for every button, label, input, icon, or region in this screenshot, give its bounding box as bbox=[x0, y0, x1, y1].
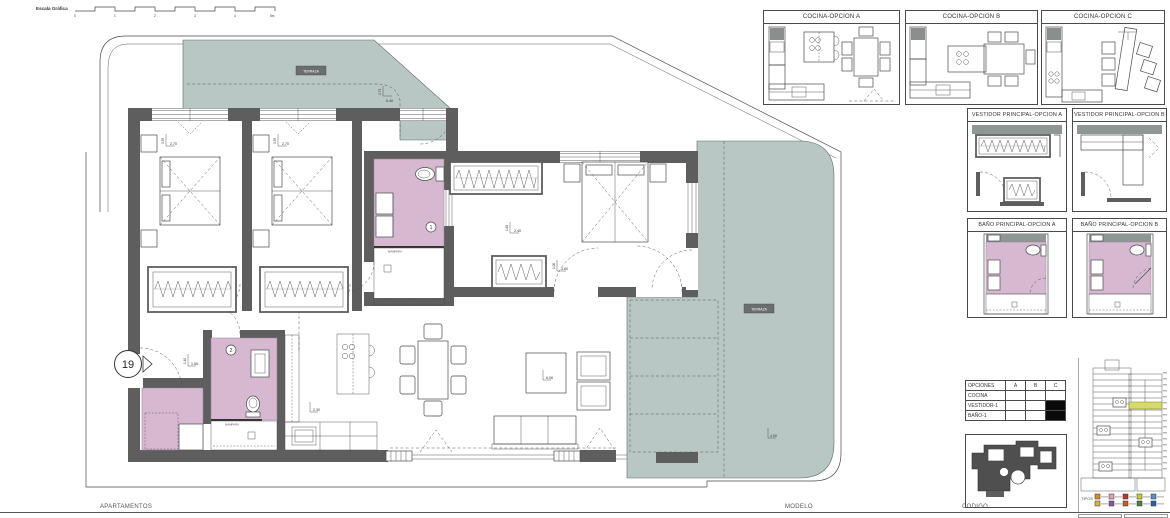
dim-kitchen: 2.30 bbox=[313, 408, 320, 412]
dim-bed1-width: 2.70 bbox=[170, 142, 177, 146]
panel-title: COCINA-OPCION A bbox=[764, 11, 899, 24]
legend-swatch bbox=[1151, 501, 1156, 506]
master-bedroom: 1.83 2.40 1.00 3.60 bbox=[450, 162, 666, 288]
terrace-top-label: TERRAZA bbox=[303, 70, 320, 74]
option-cell bbox=[1026, 411, 1046, 421]
option-cell bbox=[1006, 411, 1026, 421]
kitchen: 2.30 bbox=[285, 334, 377, 450]
bath1-number-marker: 1 bbox=[426, 222, 436, 232]
vestidor-b-drawing bbox=[1073, 122, 1166, 212]
dining-table bbox=[418, 341, 448, 399]
dim-bed2-width: 2.70 bbox=[282, 142, 289, 146]
legend-swatch bbox=[1137, 501, 1142, 506]
row-label: BAÑO-1 bbox=[966, 411, 1006, 421]
panel-bano-a: BAÑO PRINCIPAL-OPCION A bbox=[967, 218, 1067, 318]
title-block-box bbox=[1124, 514, 1168, 518]
dim-entry-depth: 1.40 bbox=[183, 358, 187, 364]
unit-number: 19 bbox=[122, 359, 134, 371]
wardrobe-small bbox=[1004, 178, 1040, 202]
stool bbox=[369, 345, 375, 378]
legend-swatch bbox=[1123, 494, 1128, 499]
footer-apartments-label: APARTAMENTOS bbox=[100, 504, 152, 510]
svg-text:2: 2 bbox=[230, 348, 233, 354]
terrace-right-floor bbox=[627, 141, 834, 478]
row-label: VESTIDOR-1 bbox=[966, 401, 1006, 411]
kitchen-counter bbox=[285, 335, 377, 450]
floorplan-sheet: Escala Gráfica 0 1 2 3 4 5m TERRAZA 2.73… bbox=[0, 0, 1170, 518]
scale-tick: 5m bbox=[270, 14, 275, 18]
dim-master-width: 2.40 bbox=[514, 229, 521, 233]
shower-area bbox=[374, 248, 444, 305]
dim-living-width: 3.60 bbox=[561, 267, 568, 271]
key-plan bbox=[965, 434, 1067, 508]
island bbox=[804, 32, 839, 62]
window bbox=[152, 109, 228, 121]
header-cell: B bbox=[1026, 381, 1046, 391]
option-cell bbox=[1026, 401, 1046, 411]
toilet bbox=[416, 167, 445, 181]
legend-swatch bbox=[1123, 501, 1128, 506]
legend-swatch bbox=[1109, 494, 1114, 499]
chair bbox=[424, 324, 442, 339]
toilet bbox=[1130, 244, 1151, 256]
options-table-header: OPCIONES A B C bbox=[966, 381, 1066, 391]
laundry-sink bbox=[179, 424, 203, 450]
dining-table bbox=[984, 32, 1035, 86]
options-table: OPCIONES A B C COCINA VESTIDOR-1 BAÑO-1 bbox=[965, 380, 1066, 421]
tipos-label: TIPOS bbox=[1081, 496, 1093, 501]
terrace-top: TERRAZA 2.73 6.40 bbox=[183, 40, 452, 144]
dim-bed2-depth: 3.35 bbox=[273, 138, 277, 144]
footer-code-label: CODIGO bbox=[962, 504, 988, 510]
header-cell: A bbox=[1006, 381, 1026, 391]
bed-double bbox=[272, 157, 332, 225]
window bbox=[560, 152, 640, 163]
header-cell: OPCIONES bbox=[966, 381, 1006, 391]
bar-angled bbox=[1102, 27, 1161, 91]
panel-title: COCINA-OPCION C bbox=[1042, 11, 1164, 24]
dim-living-depth: 1.00 bbox=[552, 263, 556, 269]
wardrobe-long bbox=[450, 162, 542, 194]
scale-tick: 4 bbox=[234, 14, 236, 18]
legend-swatch bbox=[1137, 494, 1142, 499]
wardrobe-small bbox=[492, 256, 546, 288]
wardrobe-rail bbox=[976, 135, 1050, 157]
shelving bbox=[1081, 135, 1143, 185]
chair bbox=[451, 346, 466, 364]
nightstand bbox=[141, 230, 157, 247]
option-cell bbox=[1046, 401, 1066, 411]
panel-cocina-a: COCINA-OPCION A bbox=[763, 10, 900, 105]
scale-bar: Escala Gráfica 0 1 2 3 4 5m bbox=[36, 6, 275, 18]
dim-bed1-depth: 3.35 bbox=[161, 138, 165, 144]
dim-entry-width: 1.55 bbox=[191, 362, 198, 366]
scale-tick: 1 bbox=[114, 14, 116, 18]
toilet bbox=[246, 396, 260, 417]
option-cell bbox=[1006, 401, 1026, 411]
laundry-room bbox=[142, 388, 203, 450]
highlighted-unit bbox=[1129, 402, 1162, 409]
coffee-table bbox=[526, 353, 566, 393]
armchair bbox=[577, 352, 610, 410]
nightstand bbox=[253, 135, 269, 152]
panel-title: VESTIDOR PRINCIPAL-OPCION B bbox=[1073, 109, 1166, 122]
panel-vestidor-a: VESTIDOR PRINCIPAL-OPCION A bbox=[967, 108, 1067, 212]
option-cell bbox=[1046, 411, 1066, 421]
cocina-b-drawing bbox=[906, 24, 1037, 105]
table-row: COCINA bbox=[966, 391, 1066, 401]
door-leaf bbox=[976, 172, 980, 196]
header-cell: C bbox=[1046, 381, 1066, 391]
key-plan-drawing bbox=[966, 435, 1066, 507]
floor-lines bbox=[1093, 374, 1162, 470]
panel-bano-b: BAÑO PRINCIPAL-OPCION B bbox=[1072, 218, 1167, 318]
panel-vestidor-b: VESTIDOR PRINCIPAL-OPCION B bbox=[1072, 108, 1167, 212]
chair bbox=[424, 401, 442, 416]
panel-cocina-c: COCINA-OPCION C bbox=[1041, 10, 1165, 105]
nightstand bbox=[141, 135, 157, 152]
shower-area bbox=[211, 421, 277, 450]
door-leaf bbox=[1081, 172, 1085, 196]
panel-cocina-b: COCINA-OPCION B bbox=[905, 10, 1038, 105]
table-row: BAÑO-1 bbox=[966, 411, 1066, 421]
vestidor-a-drawing bbox=[968, 122, 1066, 212]
dim-terrace-right: 4.00 bbox=[770, 434, 777, 438]
window bbox=[400, 109, 446, 121]
nightstand bbox=[650, 164, 666, 182]
table-row: VESTIDOR-1 bbox=[966, 401, 1066, 411]
mampara-label: MAMPARA bbox=[388, 250, 402, 254]
terrace-right: TERRAZA 4.00 bbox=[627, 141, 834, 478]
window bbox=[444, 190, 454, 226]
legend-swatch bbox=[1095, 501, 1100, 506]
scale-bar-label: Escala Gráfica bbox=[36, 6, 68, 11]
option-cell bbox=[1006, 391, 1026, 401]
scale-tick: 3 bbox=[194, 14, 196, 18]
podium bbox=[1137, 478, 1165, 491]
cocina-a-drawing bbox=[764, 24, 899, 105]
dim-terrace-top-depth: 2.73 bbox=[378, 89, 382, 95]
peninsula bbox=[948, 46, 986, 72]
kitchen-island bbox=[337, 334, 375, 394]
dining-table bbox=[842, 27, 890, 87]
podium bbox=[1081, 478, 1135, 491]
wardrobe bbox=[260, 267, 348, 312]
master-terrace-door-gap bbox=[686, 248, 698, 290]
window bbox=[260, 109, 336, 121]
legend-swatch bbox=[1151, 494, 1156, 499]
nightstand bbox=[253, 230, 269, 247]
bathroom-1: 1 MAMPARA bbox=[374, 159, 444, 305]
title-block-line bbox=[0, 512, 1170, 513]
row-label: COCINA bbox=[966, 391, 1006, 401]
panel-title: COCINA-OPCION B bbox=[906, 11, 1037, 24]
scale-tick: 2 bbox=[154, 14, 156, 18]
sofa bbox=[492, 416, 578, 449]
cocina-c-drawing bbox=[1042, 24, 1164, 105]
option-cell bbox=[1046, 391, 1066, 401]
nightstand bbox=[564, 164, 580, 182]
mampara-label: MAMPARA bbox=[225, 423, 239, 427]
bedroom-2: 3.35 2.70 bbox=[253, 134, 348, 312]
panel-title: VESTIDOR PRINCIPAL-OPCION A bbox=[968, 109, 1066, 122]
living-area: 6.06 bbox=[492, 352, 610, 449]
chair bbox=[400, 376, 415, 394]
floor-labels bbox=[1163, 372, 1167, 469]
svg-text:1: 1 bbox=[430, 225, 433, 231]
title-block-box bbox=[1078, 514, 1122, 518]
building-stack-drawing: TIPOS bbox=[1079, 358, 1167, 510]
bath2-number-marker: 2 bbox=[226, 345, 236, 355]
dim-living-length: 6.06 bbox=[546, 376, 553, 380]
chair bbox=[451, 376, 466, 394]
dim-master-depth: 1.83 bbox=[505, 225, 509, 231]
legend-swatch bbox=[1109, 501, 1114, 506]
vanity bbox=[251, 350, 269, 377]
chair bbox=[400, 346, 415, 364]
entry: 19 1.40 1.55 bbox=[115, 351, 199, 378]
terrace-right-label: TERRAZA bbox=[751, 308, 768, 312]
bedroom-1: 3.35 2.70 bbox=[141, 134, 236, 312]
bano-b-drawing bbox=[1073, 232, 1166, 318]
wardrobe bbox=[148, 267, 236, 312]
scale-tick: 0 bbox=[74, 14, 76, 18]
panel-title: BAÑO PRINCIPAL-OPCION A bbox=[968, 219, 1066, 232]
footer-model-label: MODELO bbox=[785, 504, 813, 510]
building-stack: TIPOS bbox=[1078, 358, 1168, 512]
legend-swatch bbox=[1095, 494, 1100, 499]
bathroom-2: 2 MAMPARA bbox=[211, 338, 277, 450]
dining-area bbox=[400, 324, 466, 416]
terrace-top-floor bbox=[183, 40, 450, 140]
bed-double bbox=[582, 162, 648, 242]
bano-a-drawing bbox=[968, 232, 1066, 318]
toilet bbox=[1026, 245, 1046, 256]
types-legend: TIPOS bbox=[1081, 494, 1164, 506]
panel-title: BAÑO PRINCIPAL-OPCION B bbox=[1073, 219, 1166, 232]
bed-double bbox=[160, 157, 220, 225]
option-cell bbox=[1026, 391, 1046, 401]
entry-arrow-icon bbox=[143, 356, 152, 372]
dim-terrace-top-width: 6.40 bbox=[386, 99, 393, 103]
window bbox=[686, 183, 698, 233]
